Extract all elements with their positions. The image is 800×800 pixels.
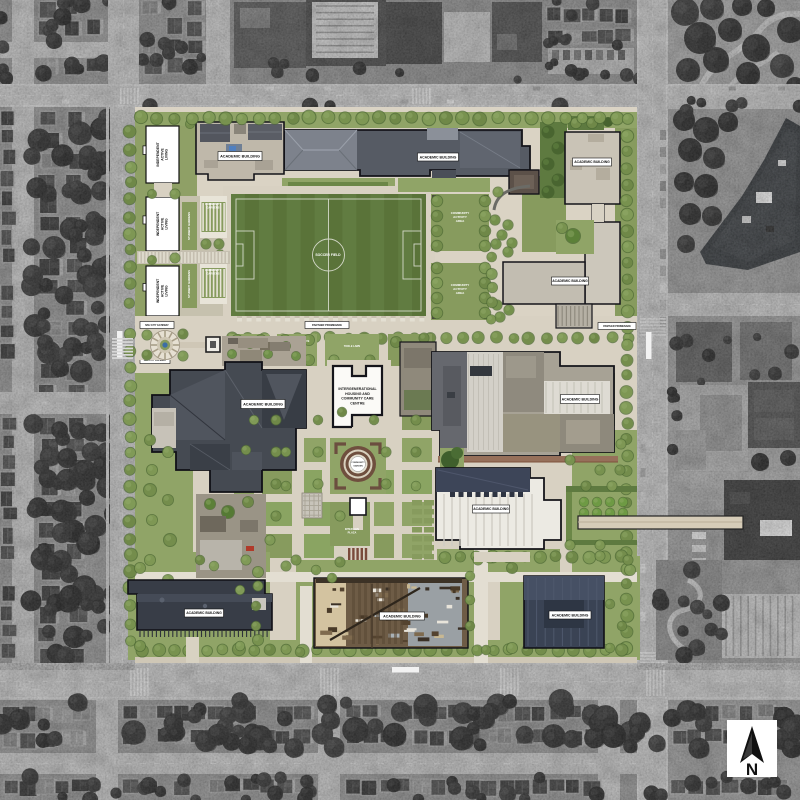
svg-text:N: N <box>746 760 758 779</box>
svg-text:LIVING: LIVING <box>165 285 169 297</box>
svg-text:COMMUNITY: COMMUNITY <box>205 202 221 206</box>
svg-text:ACADEMIC BUILDING: ACADEMIC BUILDING <box>473 507 509 511</box>
svg-text:COMMUNITY CARE: COMMUNITY CARE <box>341 397 374 401</box>
svg-text:TICKLE LAWN: TICKLE LAWN <box>344 345 361 348</box>
svg-text:INTER GEN: INTER GEN <box>345 527 359 531</box>
svg-text:ACADEMIC BUILDING: ACADEMIC BUILDING <box>552 613 589 617</box>
svg-text:COMMUNITY: COMMUNITY <box>351 462 365 464</box>
svg-text:AREA: AREA <box>456 219 465 223</box>
svg-text:COMMUNITY: COMMUNITY <box>205 268 221 272</box>
svg-text:LIVING: LIVING <box>165 148 169 160</box>
svg-text:GARDENS: GARDENS <box>207 206 220 210</box>
svg-text:SOCCER FIELD: SOCCER FIELD <box>315 253 341 257</box>
svg-text:GARDEN: GARDEN <box>353 464 363 467</box>
svg-text:NSU CITY GATEWAY: NSU CITY GATEWAY <box>145 324 169 327</box>
svg-text:ACADEMIC BUILDING: ACADEMIC BUILDING <box>186 611 222 615</box>
svg-text:AREA: AREA <box>456 291 465 295</box>
svg-text:ACADEMIC BUILDING: ACADEMIC BUILDING <box>552 279 588 283</box>
svg-text:CENTRE: CENTRE <box>350 402 365 406</box>
svg-text:LIVING: LIVING <box>165 218 169 230</box>
svg-text:PLAZA: PLAZA <box>348 531 357 535</box>
svg-text:STUDENT GARDENS: STUDENT GARDENS <box>187 212 191 240</box>
svg-text:ACADEMIC BUILDING: ACADEMIC BUILDING <box>243 402 283 406</box>
svg-text:PANTHER PROMENADE: PANTHER PROMENADE <box>603 325 631 328</box>
svg-text:STUDENT GARDENS: STUDENT GARDENS <box>187 270 191 298</box>
svg-text:ACADEMIC BUILDING: ACADEMIC BUILDING <box>574 160 610 164</box>
svg-text:INTERGENERATIONAL: INTERGENERATIONAL <box>338 387 377 391</box>
svg-text:PANTHER PROMENADE: PANTHER PROMENADE <box>312 323 342 327</box>
svg-text:ACADEMIC BUILDING: ACADEMIC BUILDING <box>562 397 599 401</box>
svg-text:ACADEMIC BUILDING: ACADEMIC BUILDING <box>220 154 260 158</box>
svg-text:ACADEMIC BUILDING: ACADEMIC BUILDING <box>420 155 457 159</box>
svg-text:HOUSING AND: HOUSING AND <box>345 392 370 396</box>
svg-text:GARDENS: GARDENS <box>207 272 220 276</box>
svg-text:ACADEMIC BUILDING: ACADEMIC BUILDING <box>383 614 421 618</box>
